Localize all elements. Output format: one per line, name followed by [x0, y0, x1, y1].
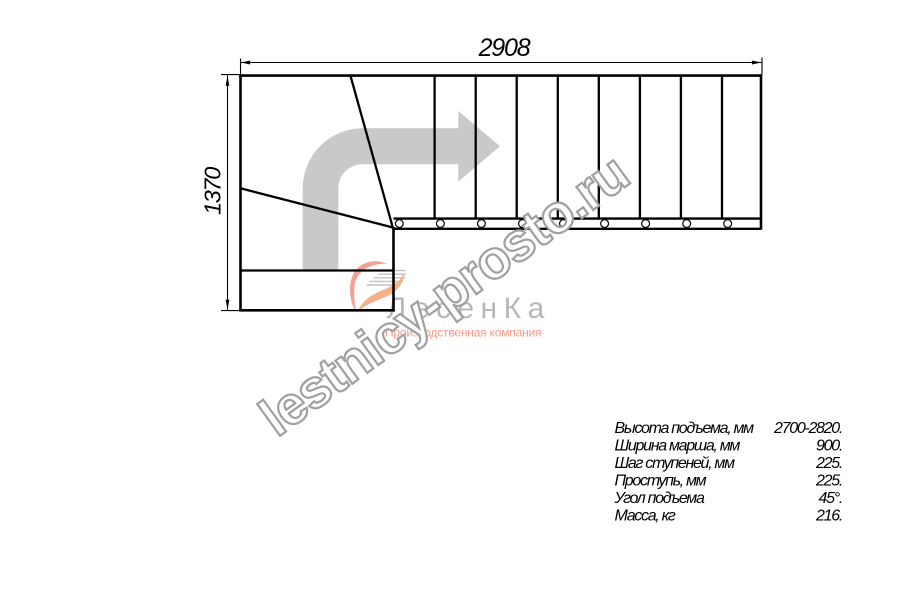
svg-text:Высота подъема, мм: Высота подъема, мм: [615, 420, 755, 437]
svg-text:2908: 2908: [478, 34, 531, 62]
svg-text:Ширина марша, мм: Ширина марша, мм: [615, 437, 741, 454]
svg-text:216.: 216.: [815, 507, 842, 524]
svg-text:1370: 1370: [200, 167, 226, 215]
svg-text:Проступь, мм: Проступь, мм: [615, 472, 707, 489]
svg-text:Масса, кг: Масса, кг: [615, 507, 676, 524]
svg-text:2700-2820.: 2700-2820.: [773, 420, 842, 437]
svg-text:225.: 225.: [815, 472, 842, 489]
svg-text:Шаг ступеней, мм: Шаг ступеней, мм: [615, 455, 736, 472]
svg-text:900.: 900.: [816, 437, 842, 454]
svg-text:Угол подъема: Угол подъема: [614, 490, 705, 507]
svg-text:45°.: 45°.: [819, 490, 842, 507]
svg-text:225.: 225.: [815, 455, 842, 472]
